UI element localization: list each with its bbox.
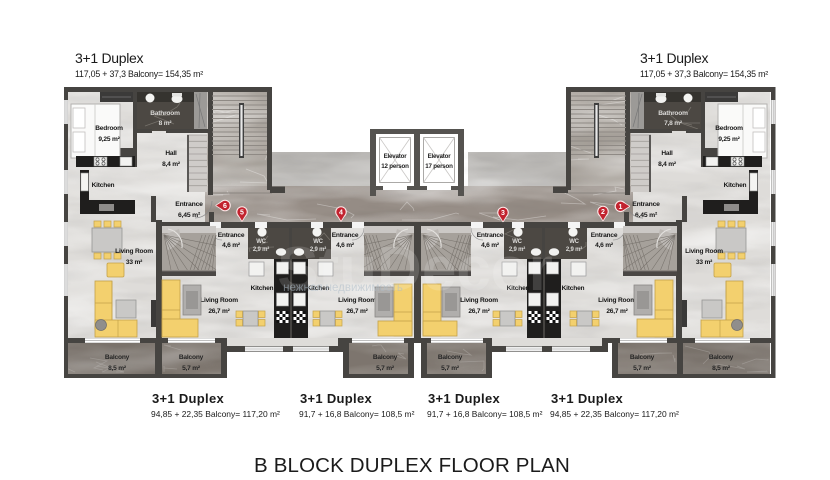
svg-text:3+1 Duplex: 3+1 Duplex <box>428 391 500 406</box>
svg-text:26,7 m²: 26,7 m² <box>468 308 490 315</box>
svg-text:4: 4 <box>339 210 343 217</box>
svg-text:нежная недвижимость: нежная недвижимость <box>283 282 403 294</box>
svg-text:Balcony: Balcony <box>373 354 398 361</box>
svg-text:33 m²: 33 m² <box>126 259 143 266</box>
svg-text:5,7 m²: 5,7 m² <box>633 365 652 372</box>
svg-text:8,5 m²: 8,5 m² <box>108 365 127 372</box>
svg-text:Elevator: Elevator <box>428 153 452 160</box>
svg-text:Bedroom: Bedroom <box>715 125 743 132</box>
svg-text:Kitchen: Kitchen <box>562 285 585 292</box>
svg-text:33 m²: 33 m² <box>696 259 713 266</box>
svg-text:26,7 m²: 26,7 m² <box>606 308 628 315</box>
svg-text:Entrance: Entrance <box>591 232 618 239</box>
svg-text:3+1 Duplex: 3+1 Duplex <box>551 391 623 406</box>
svg-text:B BLOCK DUPLEX FLOOR PLAN: B BLOCK DUPLEX FLOOR PLAN <box>254 454 570 477</box>
svg-text:Balcony: Balcony <box>105 354 130 361</box>
svg-text:Living Room: Living Room <box>115 248 153 255</box>
svg-text:5,7 m²: 5,7 m² <box>441 365 460 372</box>
svg-text:5: 5 <box>240 210 244 217</box>
svg-text:Elevator: Elevator <box>384 153 408 160</box>
svg-text:3+1 Duplex: 3+1 Duplex <box>300 391 372 406</box>
svg-text:3: 3 <box>501 210 505 217</box>
svg-text:Living Room: Living Room <box>598 297 636 304</box>
svg-text:26,7 m²: 26,7 m² <box>208 308 230 315</box>
svg-text:Balcony: Balcony <box>709 354 734 361</box>
svg-text:Entrance: Entrance <box>218 232 245 239</box>
svg-text:1: 1 <box>619 204 623 211</box>
svg-text:12 person: 12 person <box>381 163 409 170</box>
svg-text:WC: WC <box>256 239 266 245</box>
svg-text:Kitchen: Kitchen <box>92 182 115 189</box>
svg-text:2,9 m²: 2,9 m² <box>566 246 582 253</box>
svg-text:8,4 m²: 8,4 m² <box>162 161 181 168</box>
svg-text:Living Room: Living Room <box>685 248 723 255</box>
svg-text:5,7 m²: 5,7 m² <box>182 365 201 372</box>
svg-text:Balcony: Balcony <box>438 354 463 361</box>
svg-text:94,85 + 22,35 Balcony= 117,20: 94,85 + 22,35 Balcony= 117,20 m² <box>550 409 679 419</box>
svg-text:9,25 m²: 9,25 m² <box>718 136 740 143</box>
svg-text:Bedroom: Bedroom <box>95 125 123 132</box>
svg-text:5,7 m²: 5,7 m² <box>376 365 395 372</box>
svg-text:Entrance: Entrance <box>632 201 660 208</box>
svg-text:2,9 m²: 2,9 m² <box>253 246 269 253</box>
svg-text:Living Room: Living Room <box>200 297 238 304</box>
svg-text:7,8 m²: 7,8 m² <box>664 120 683 127</box>
svg-text:3+1 Duplex: 3+1 Duplex <box>75 50 144 66</box>
svg-text:9,25 m²: 9,25 m² <box>98 136 120 143</box>
svg-text:Kitchen: Kitchen <box>724 182 747 189</box>
svg-text:Hall: Hall <box>661 150 673 157</box>
svg-text:91,7 + 16,8 Balcony= 108,5 m²: 91,7 + 16,8 Balcony= 108,5 m² <box>299 409 415 419</box>
svg-text:8 m²: 8 m² <box>159 120 173 127</box>
svg-text:Entrance: Entrance <box>175 201 203 208</box>
svg-text:6: 6 <box>223 203 227 210</box>
svg-text:91,7 + 16,8 Balcony= 108,5 m²: 91,7 + 16,8 Balcony= 108,5 m² <box>427 409 543 419</box>
svg-text:Bathroom: Bathroom <box>658 110 688 117</box>
svg-text:26,7 m²: 26,7 m² <box>346 308 368 315</box>
svg-text:17 person: 17 person <box>425 163 453 170</box>
svg-text:Balcony: Balcony <box>179 354 204 361</box>
svg-text:4,6 m²: 4,6 m² <box>222 242 241 249</box>
svg-text:117,05 + 37,3 Balcony= 154,35: 117,05 + 37,3 Balcony= 154,35 m² <box>75 69 203 79</box>
svg-text:3+1 Duplex: 3+1 Duplex <box>152 391 224 406</box>
svg-text:94,85 + 22,35 Balcony= 117,20: 94,85 + 22,35 Balcony= 117,20 m² <box>151 409 280 419</box>
svg-text:117,05 + 37,3 Balcony= 154,35: 117,05 + 37,3 Balcony= 154,35 m² <box>640 69 768 79</box>
svg-text:3+1 Duplex: 3+1 Duplex <box>640 50 709 66</box>
svg-text:Kitchen: Kitchen <box>251 285 274 292</box>
svg-text:8,5 m²: 8,5 m² <box>712 365 731 372</box>
svg-text:Hall: Hall <box>165 150 177 157</box>
svg-text:6,45 m²: 6,45 m² <box>635 212 658 219</box>
svg-text:Balcony: Balcony <box>630 354 655 361</box>
svg-text:Bathroom: Bathroom <box>150 110 180 117</box>
svg-text:8,4 m²: 8,4 m² <box>658 161 677 168</box>
svg-text:2: 2 <box>601 209 605 216</box>
svg-text:4,6 m²: 4,6 m² <box>595 242 614 249</box>
svg-text:WC: WC <box>569 239 579 245</box>
